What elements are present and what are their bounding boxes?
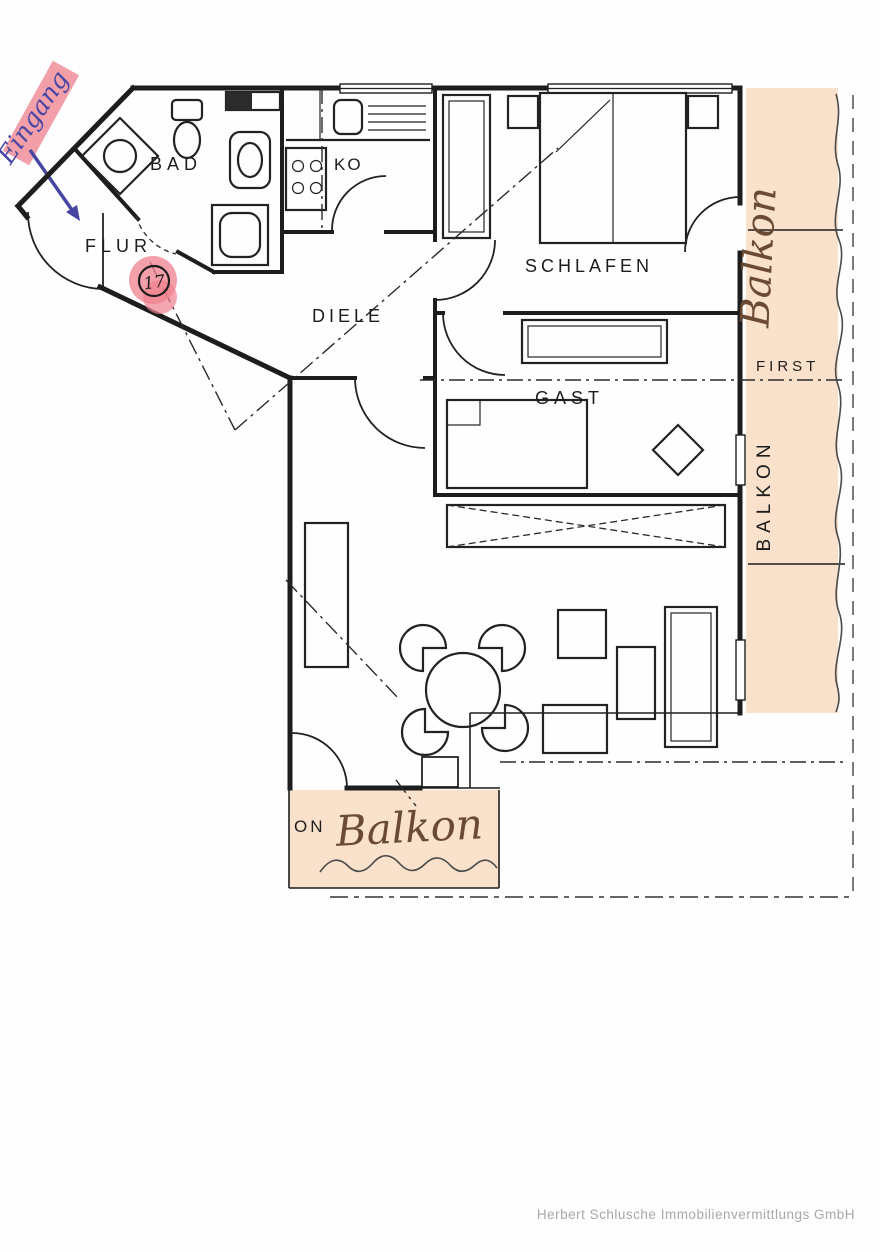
guest-bed bbox=[447, 400, 587, 488]
sofa-inner bbox=[671, 613, 711, 741]
room-label-flur: FLUR bbox=[85, 236, 152, 256]
living-balcony-door-left bbox=[292, 733, 347, 788]
scanned-floor-plan-page: Eingang bbox=[0, 0, 880, 1252]
living-furniture bbox=[305, 523, 717, 755]
room-label-bad: BAD bbox=[150, 154, 202, 174]
chair bbox=[482, 705, 528, 751]
burner-icon bbox=[293, 183, 304, 194]
kitchen-fixtures bbox=[286, 88, 430, 210]
guest-window-sill bbox=[736, 435, 745, 485]
room-label-diele: DIELE bbox=[312, 306, 384, 326]
sofa bbox=[665, 607, 717, 747]
toilet-bowl bbox=[174, 122, 200, 158]
room-label-schlafen: SCHLAFEN bbox=[525, 256, 653, 276]
washing-machine-drum-icon bbox=[104, 140, 136, 172]
wardrobe-crossed bbox=[447, 505, 725, 547]
bedroom-balcony-door bbox=[685, 197, 740, 252]
living-balcony-door-sill bbox=[736, 640, 745, 700]
entrance-annotation: Eingang bbox=[0, 65, 80, 221]
balcony-label-bottom-printed: ON bbox=[294, 817, 326, 836]
guest-room-door bbox=[443, 313, 505, 375]
entrance-label: Eingang bbox=[0, 65, 74, 169]
living-window-band bbox=[420, 713, 740, 788]
balcony-handwritten-bottom: Balkon bbox=[333, 799, 483, 856]
living-room-door bbox=[355, 378, 425, 448]
guest-furniture bbox=[447, 320, 725, 547]
kitchen-sink bbox=[334, 100, 362, 134]
guest-table bbox=[653, 425, 703, 475]
burner-icon bbox=[293, 161, 304, 172]
balcony-handwritten-right: Balkon bbox=[732, 186, 785, 329]
section-line-living bbox=[286, 580, 400, 700]
washbasin-bowl bbox=[238, 143, 262, 177]
shower-inner bbox=[220, 213, 260, 257]
floor-plan-drawing: Eingang bbox=[0, 0, 880, 1252]
washbasin bbox=[230, 132, 270, 188]
chair bbox=[402, 709, 448, 755]
burner-icon bbox=[311, 161, 322, 172]
duct-shaft-hatch bbox=[226, 92, 252, 110]
kitchen-drainer-lines bbox=[368, 106, 426, 130]
balcony-label-right-printed: BALKON bbox=[754, 438, 775, 551]
bedroom-furniture bbox=[443, 93, 718, 243]
balcony-door-leaf bbox=[422, 757, 458, 787]
guest-pillow bbox=[447, 400, 480, 425]
room-label-kitchen: KO bbox=[334, 155, 363, 174]
guest-sideboard-inner bbox=[528, 326, 661, 357]
wardrobe-x-icon bbox=[447, 505, 725, 547]
armchair bbox=[558, 610, 606, 658]
footer-company-name: Herbert Schlusche Immobilienvermittlungs… bbox=[537, 1207, 855, 1222]
right-balcony-highlight bbox=[746, 88, 838, 713]
apartment-number: 17 bbox=[142, 272, 166, 295]
dining-table bbox=[426, 653, 500, 727]
outer-walls bbox=[18, 88, 740, 788]
stove bbox=[286, 148, 326, 210]
chair bbox=[400, 625, 446, 671]
kitchen-door bbox=[332, 176, 386, 230]
nightstand-left bbox=[508, 96, 538, 128]
coffee-table bbox=[617, 647, 655, 719]
bedroom-closet-inner bbox=[449, 101, 484, 232]
bedroom-closet bbox=[443, 95, 490, 238]
room-label-gast: GAST bbox=[535, 388, 604, 408]
walls bbox=[18, 88, 740, 788]
toilet-tank bbox=[172, 100, 202, 120]
living-cabinet bbox=[305, 523, 348, 667]
chair bbox=[479, 625, 525, 671]
bedroom-door bbox=[435, 240, 495, 300]
ridge-label-first: FIRST bbox=[756, 358, 819, 375]
nightstand-right bbox=[688, 96, 718, 128]
bed-fold-mark bbox=[556, 100, 610, 152]
burner-icon bbox=[311, 183, 322, 194]
